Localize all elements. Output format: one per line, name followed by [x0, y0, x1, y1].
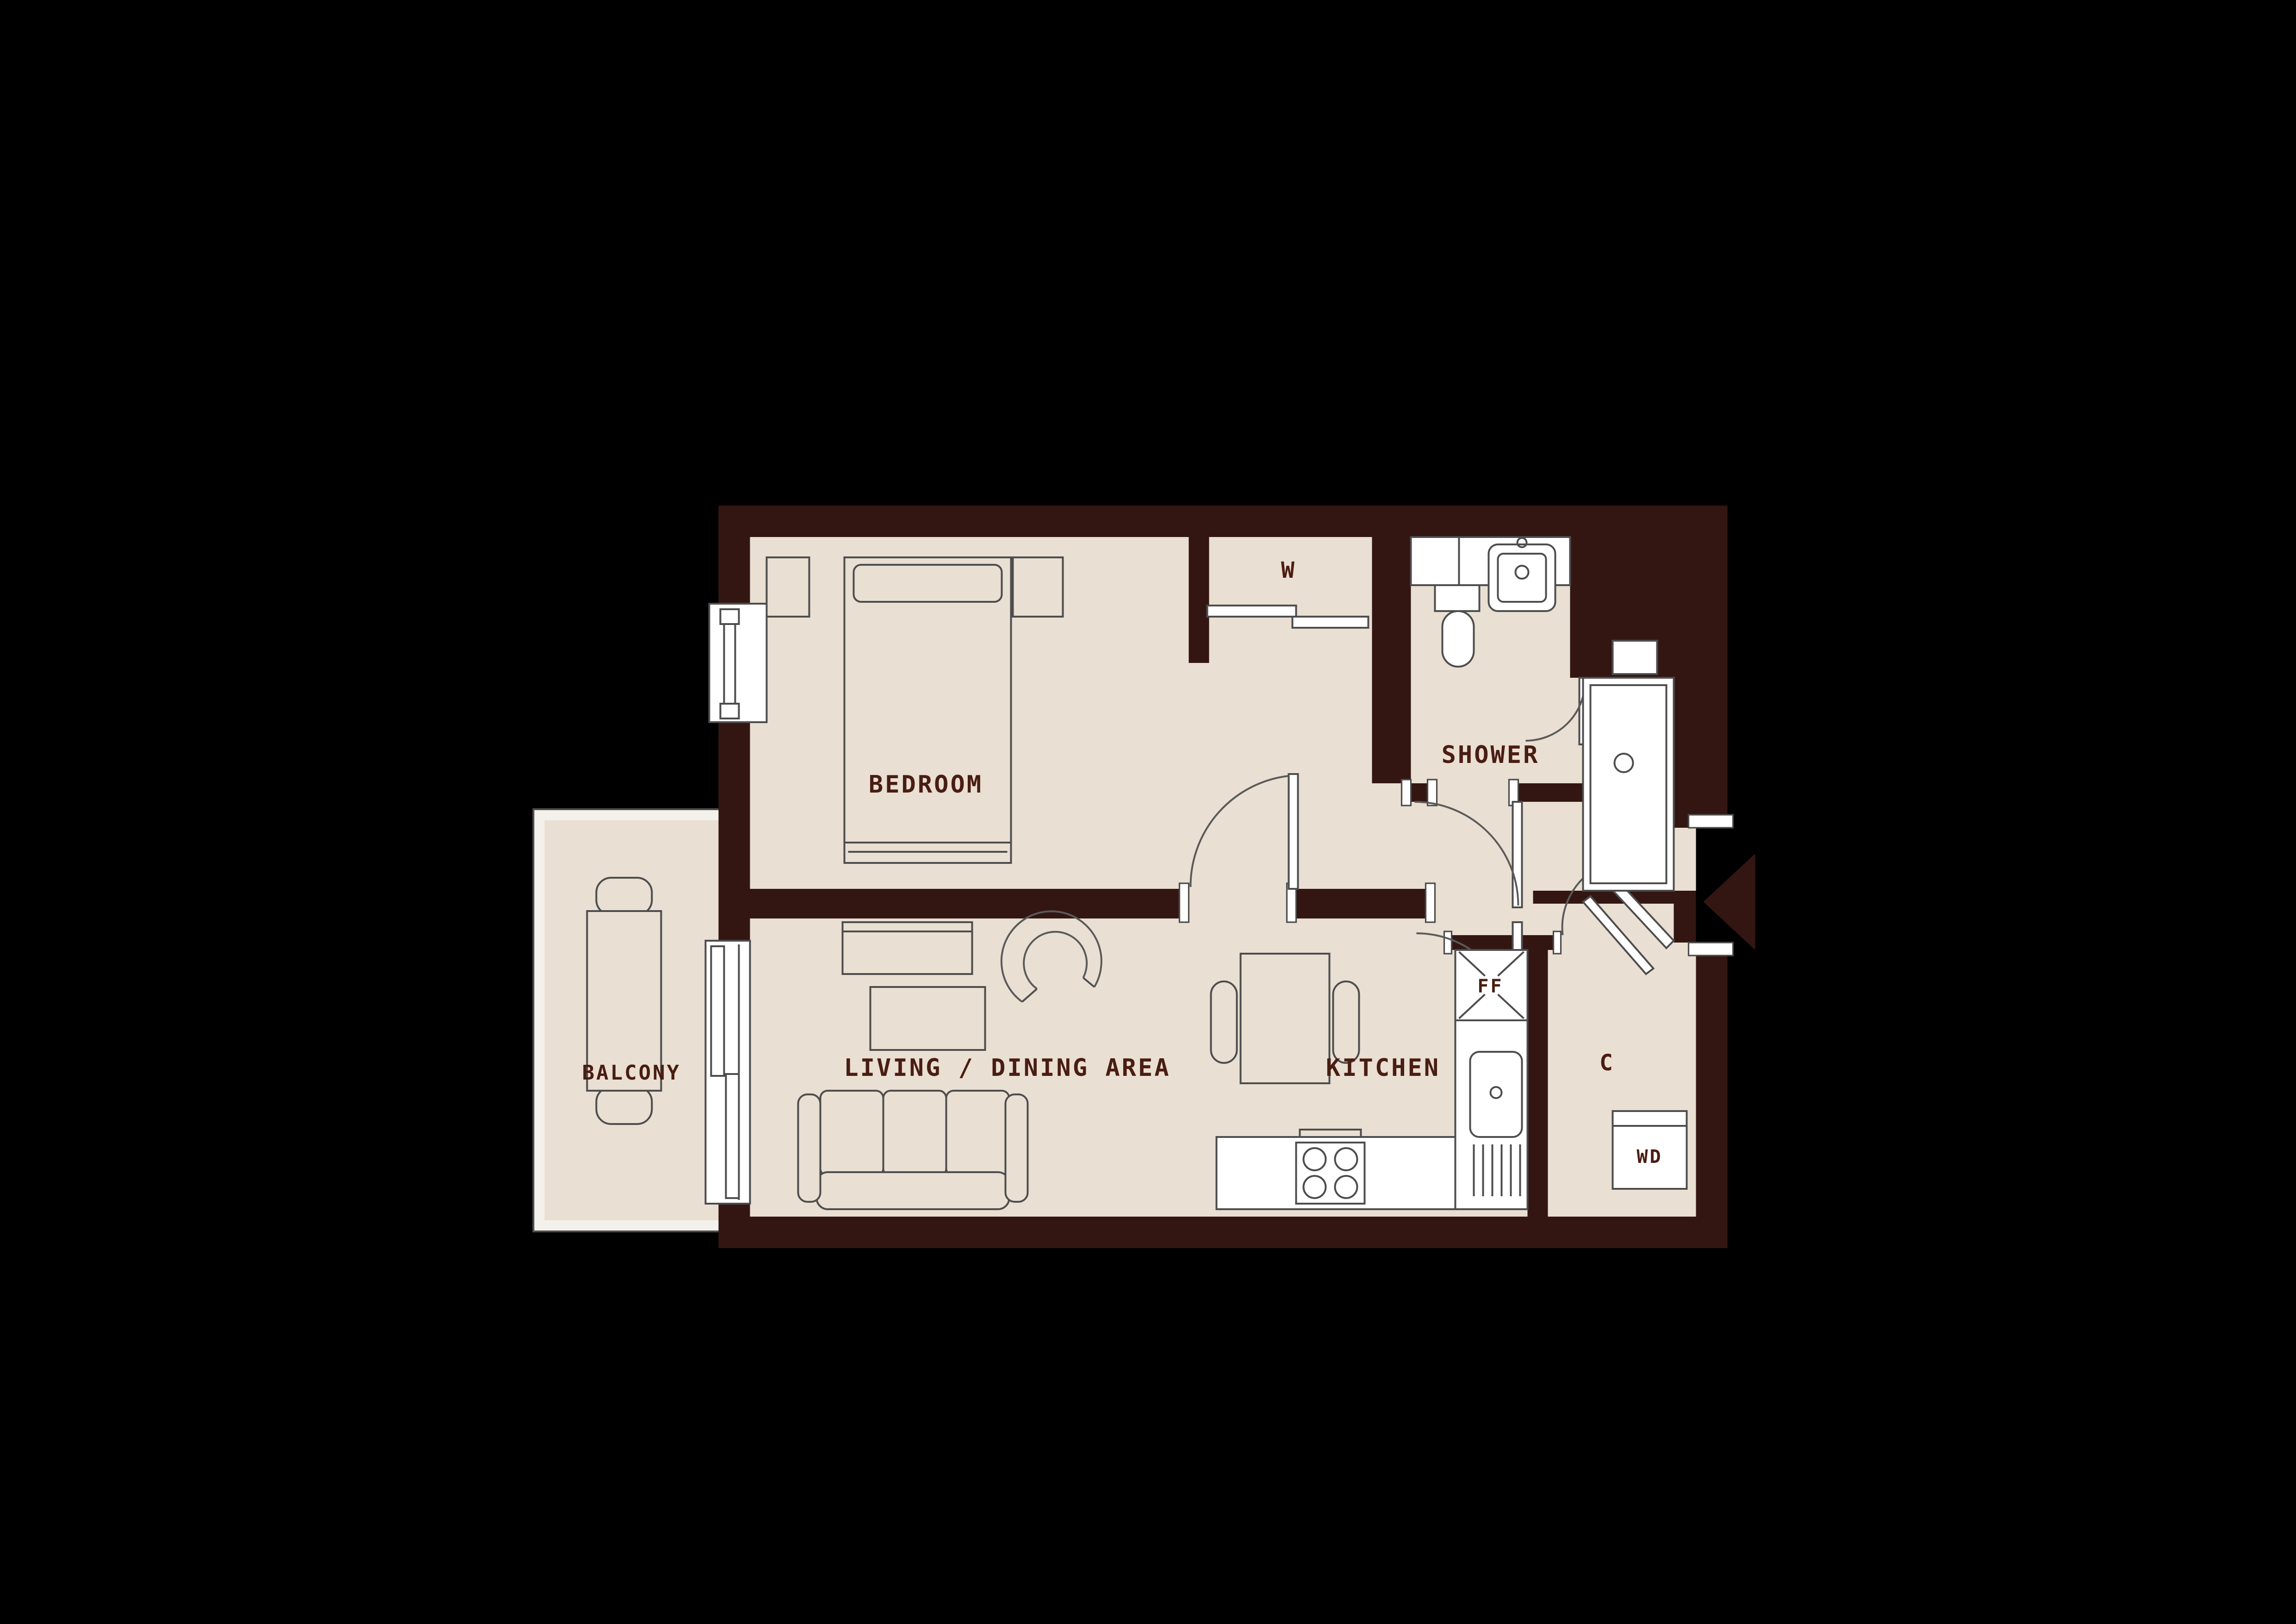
- wall-shower-stub: [1411, 783, 1428, 802]
- wall-bedroom-living: [750, 889, 1189, 918]
- kitchen-label: KITCHEN: [1326, 1054, 1440, 1082]
- bedroom-door-leaf: [1289, 774, 1298, 889]
- washer-dryer-label: WD: [1636, 1146, 1662, 1168]
- dining-chair-left: [1211, 981, 1237, 1063]
- dining-chair-right: [1333, 981, 1359, 1063]
- wall-shower-bottom: [1518, 783, 1583, 802]
- wall-lobby: [1296, 889, 1430, 918]
- wall-kitchen-cupboard: [1528, 946, 1548, 1217]
- shower-stall: [1583, 678, 1674, 891]
- bedroom-window: [709, 604, 767, 722]
- dining-table: [1241, 954, 1330, 1083]
- wall-right-upper: [1696, 506, 1728, 828]
- coffee-table: [871, 987, 985, 1050]
- shower-window: [1613, 641, 1657, 674]
- cupboard-label: C: [1599, 1050, 1615, 1076]
- wardrobe-label: W: [1281, 557, 1296, 583]
- floor-plan: BEDROOM W SHOWER BALCONY LIVING / DINING…: [0, 0, 2296, 1624]
- balcony-label: BALCONY: [582, 1061, 681, 1085]
- bed: [845, 557, 1011, 863]
- wall-wardrobe-shower: [1372, 537, 1411, 783]
- balcony-seat-top: [597, 878, 652, 915]
- wall-entry-jamb: [1674, 904, 1696, 943]
- bedroom-label: BEDROOM: [869, 771, 983, 799]
- living-dining-label: LIVING / DINING AREA: [844, 1054, 1170, 1082]
- nightstand-left: [767, 557, 809, 617]
- wall-bedroom-wardrobe: [1189, 537, 1209, 663]
- balcony-sliding-door: [706, 941, 750, 1204]
- floor-plan-page: BEDROOM W SHOWER BALCONY LIVING / DINING…: [0, 0, 2296, 1624]
- wall-stall-side: [1674, 678, 1696, 828]
- nightstand-right: [1013, 557, 1063, 617]
- wall-top: [719, 506, 1728, 537]
- shower-label: SHOWER: [1442, 741, 1540, 769]
- balcony-seat-bottom: [597, 1087, 652, 1124]
- balcony-table-set: [587, 878, 661, 1124]
- fridge-freezer-label: FF: [1477, 976, 1503, 997]
- sideboard: [843, 922, 972, 974]
- sofa: [798, 1091, 1028, 1209]
- wall-right-lower: [1696, 943, 1728, 1248]
- wall-left-upper: [719, 506, 750, 607]
- wall-left-mid: [719, 722, 750, 944]
- wall-left-lower: [719, 1200, 750, 1248]
- wall-bottom: [719, 1217, 1728, 1248]
